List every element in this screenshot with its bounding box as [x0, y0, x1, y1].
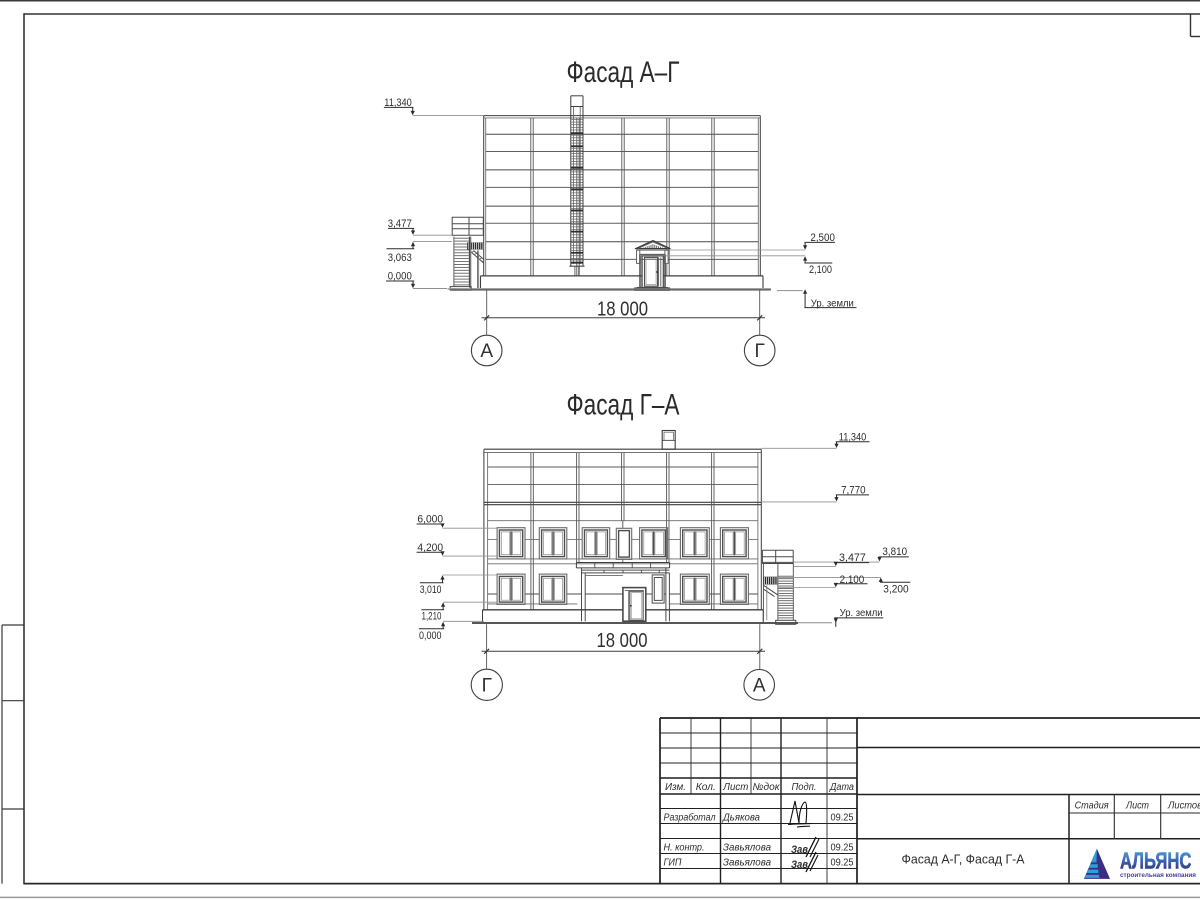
svg-text:Дьякова: Дьякова — [722, 812, 761, 823]
svg-text:Фасад Г–А: Фасад Г–А — [567, 389, 680, 422]
svg-text:АЛЬЯНС: АЛЬЯНС — [1120, 847, 1192, 873]
svg-text:3,477: 3,477 — [839, 552, 866, 564]
svg-text:09.25: 09.25 — [831, 857, 854, 868]
svg-text:Зав: Зав — [791, 859, 808, 871]
svg-text:Листов: Листов — [1167, 801, 1200, 812]
svg-text:Г: Г — [482, 676, 492, 697]
svg-text:09.25: 09.25 — [831, 812, 854, 823]
svg-text:Стадия: Стадия — [1075, 801, 1109, 812]
svg-text:Лист: Лист — [1125, 801, 1149, 812]
svg-text:09.25: 09.25 — [831, 842, 854, 853]
svg-text:1,210: 1,210 — [422, 611, 442, 623]
svg-text:ГИП: ГИП — [664, 857, 683, 868]
svg-text:Изм.: Изм. — [665, 782, 686, 793]
svg-text:Дата: Дата — [829, 782, 854, 793]
svg-text:строительная компания: строительная компания — [1120, 872, 1196, 879]
svg-text:3,200: 3,200 — [883, 583, 908, 595]
svg-text:3,010: 3,010 — [420, 584, 442, 596]
svg-text:3,063: 3,063 — [388, 252, 412, 264]
svg-text:Кол.: Кол. — [696, 782, 716, 793]
svg-text:Завьялова: Завьялова — [723, 842, 772, 853]
svg-text:Ур. земли: Ур. земли — [840, 608, 883, 619]
svg-text:Завьялова: Завьялова — [723, 857, 772, 868]
svg-text:Разработал: Разработал — [664, 812, 716, 823]
svg-text:0,000: 0,000 — [419, 630, 442, 642]
svg-text:Зав: Зав — [791, 844, 808, 856]
svg-text:Н. контр.: Н. контр. — [664, 842, 705, 853]
svg-text:А: А — [753, 676, 766, 697]
svg-text:Г: Г — [755, 341, 765, 362]
svg-text:18 000: 18 000 — [597, 299, 648, 321]
svg-text:18 000: 18 000 — [597, 630, 648, 652]
svg-text:Фасад А–Г: Фасад А–Г — [567, 56, 680, 89]
svg-text:Подп.: Подп. — [792, 782, 817, 793]
svg-text:2,100: 2,100 — [809, 264, 832, 276]
svg-text:Фасад А-Г, Фасад Г-А: Фасад А-Г, Фасад Г-А — [902, 853, 1026, 867]
svg-text:№док: №док — [753, 782, 781, 793]
svg-text:Лист: Лист — [722, 782, 748, 793]
svg-text:3,810: 3,810 — [882, 546, 907, 558]
svg-text:А: А — [480, 341, 493, 362]
